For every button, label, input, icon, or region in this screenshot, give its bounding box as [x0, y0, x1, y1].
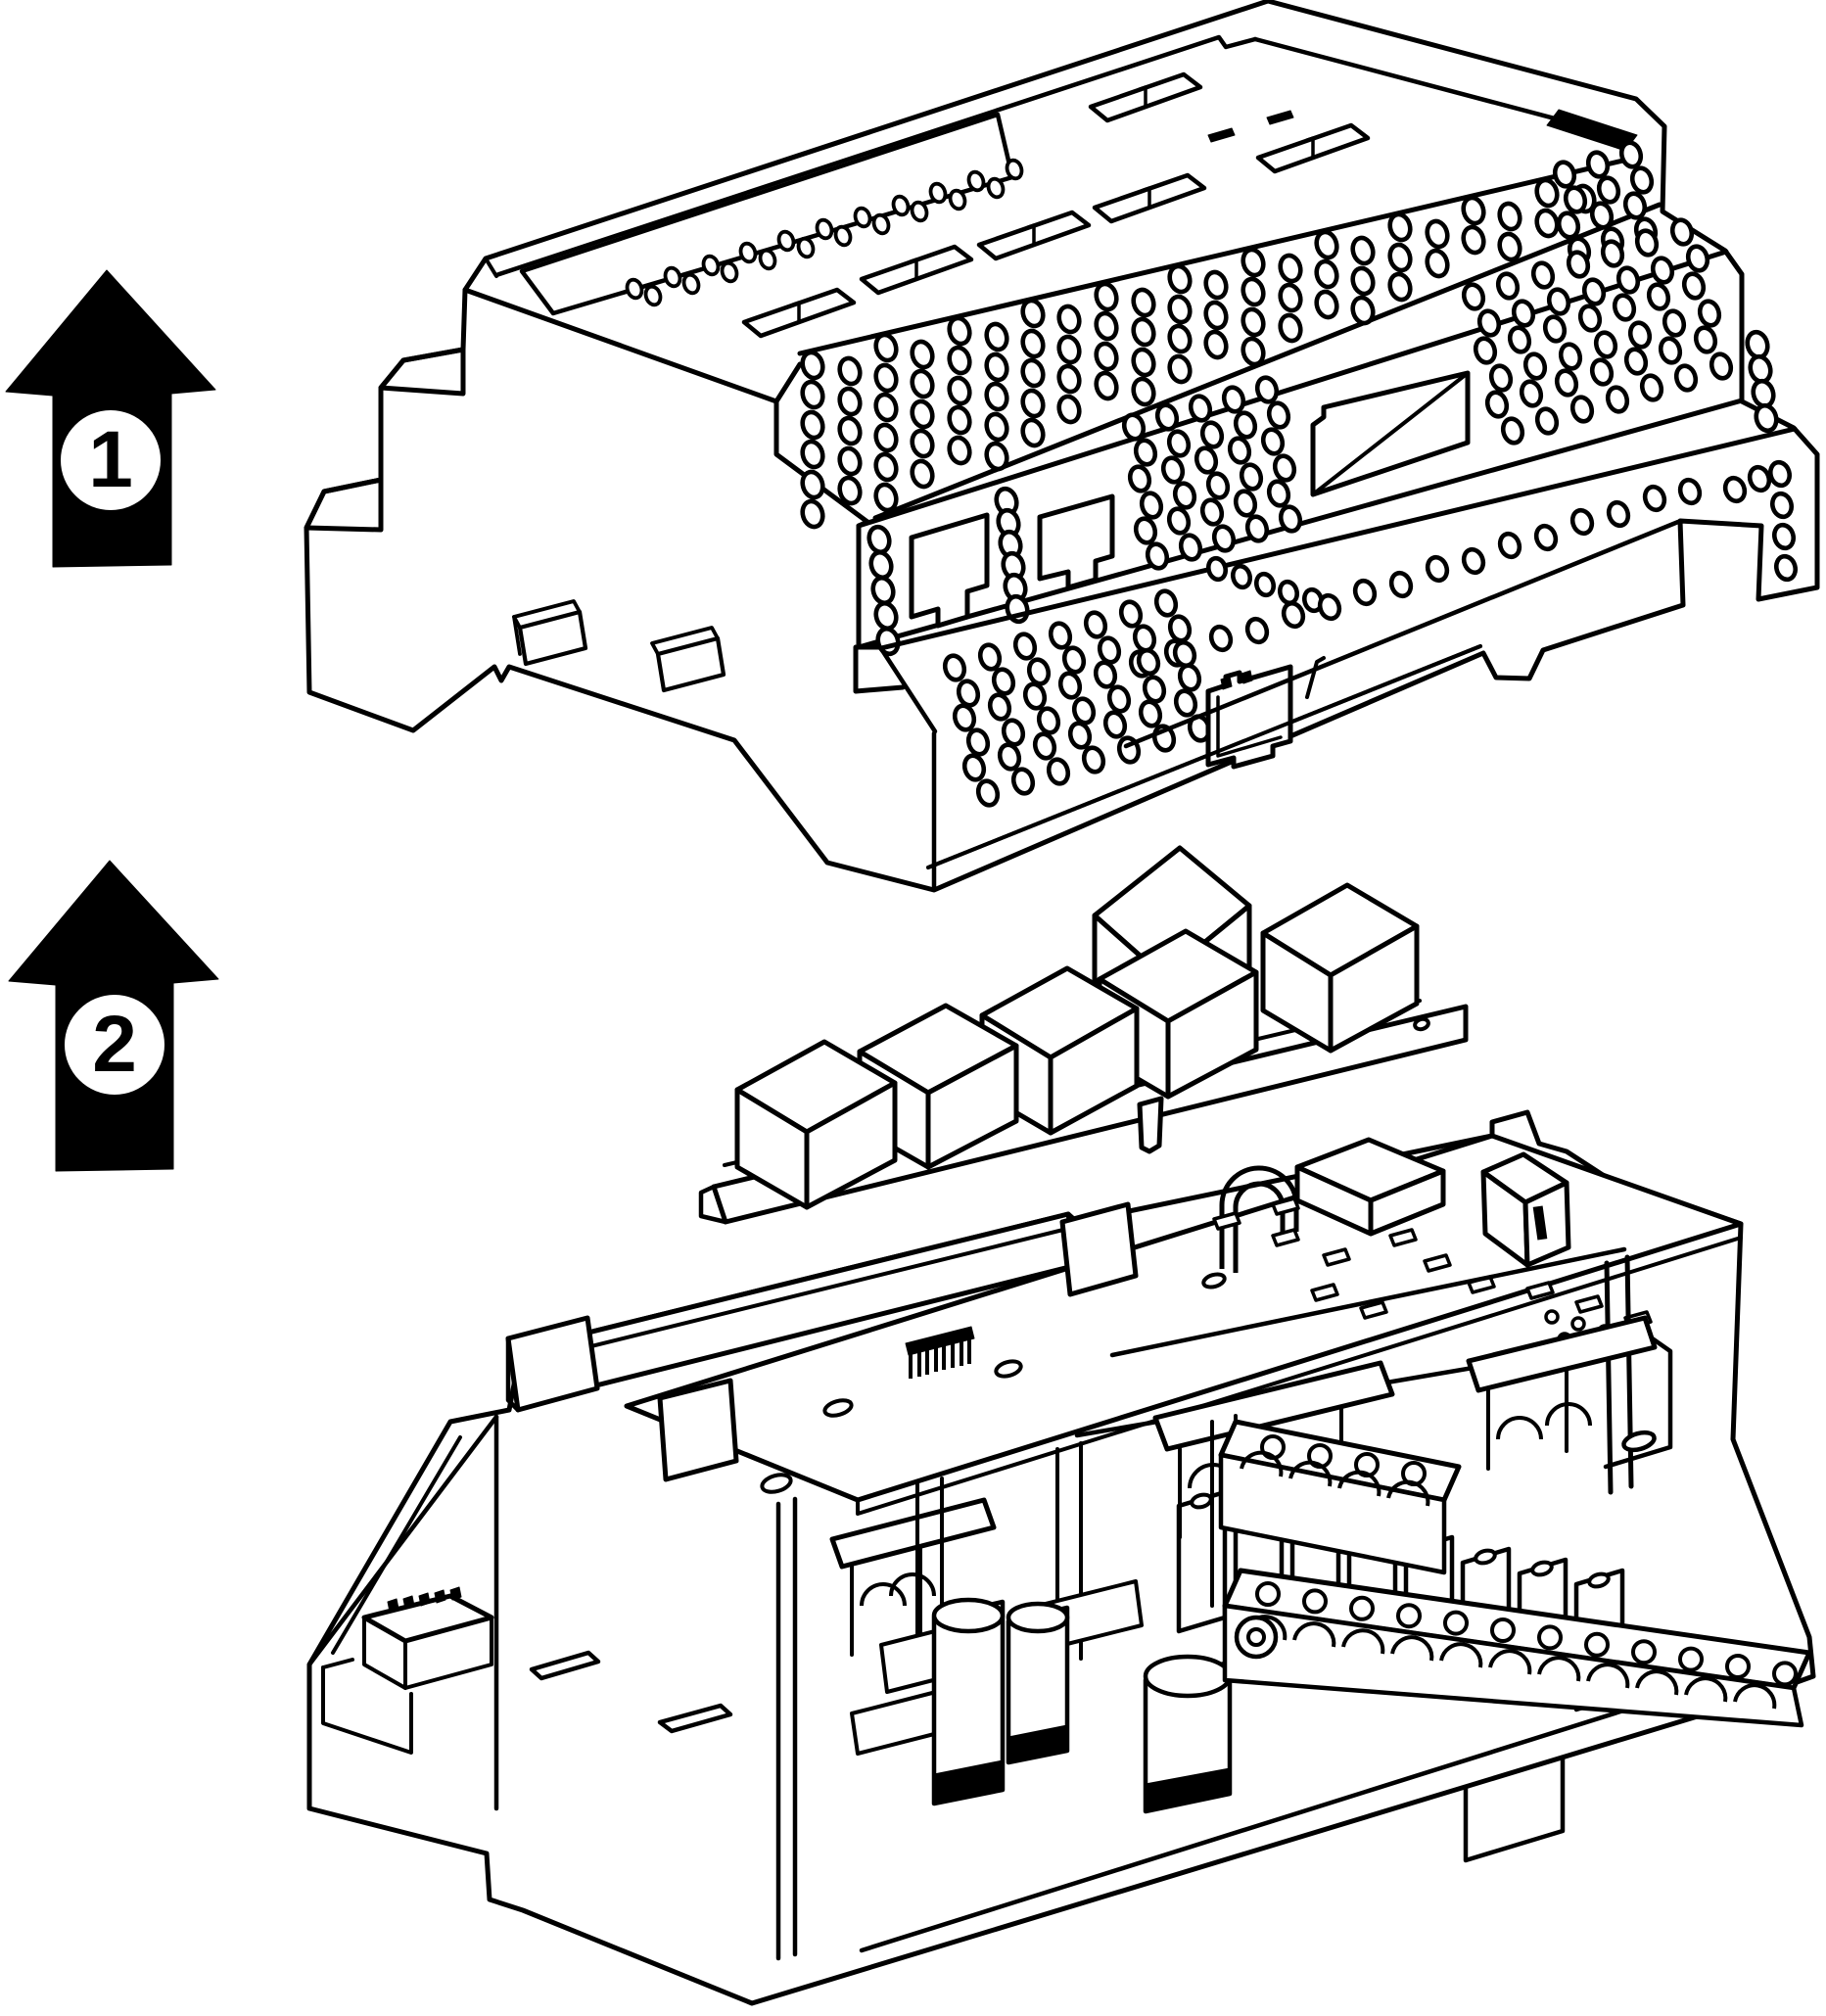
svg-text:1: 1: [88, 415, 133, 504]
svg-text:2: 2: [92, 1000, 137, 1089]
